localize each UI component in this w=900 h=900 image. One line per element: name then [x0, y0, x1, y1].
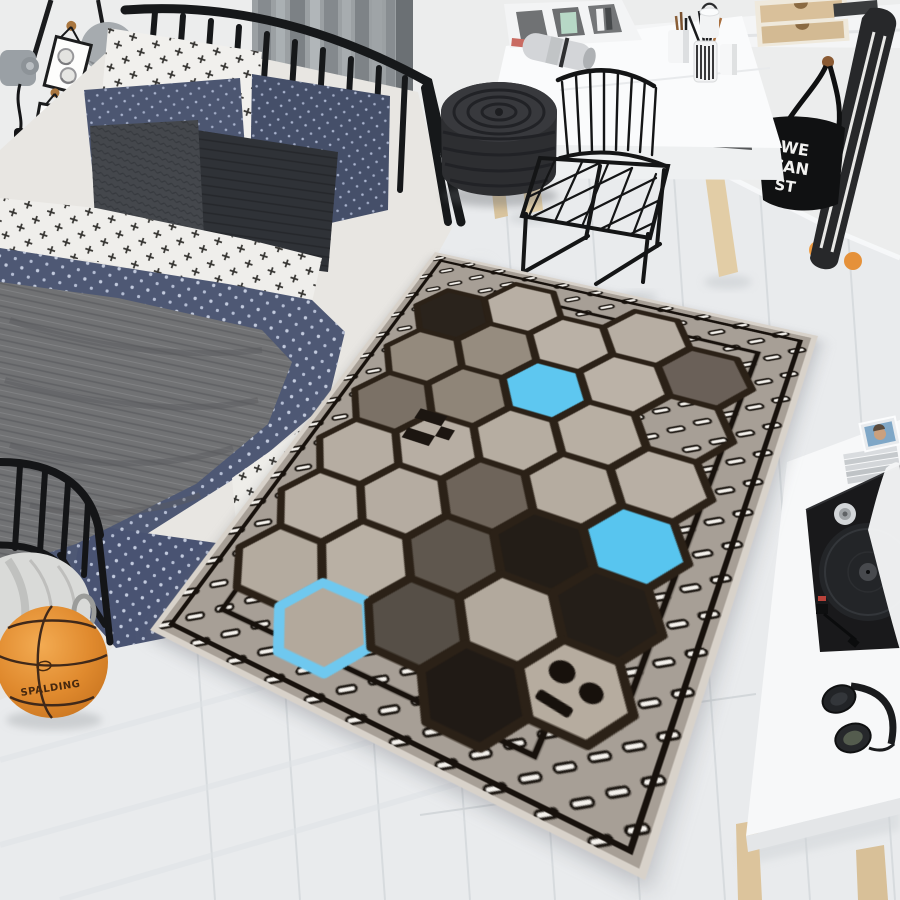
photo-card: [859, 417, 900, 452]
turntable-button: [818, 596, 826, 601]
bedroom-scene: WE CAN ST: [0, 0, 900, 900]
paper-roll: [700, 4, 719, 38]
book-mint: [560, 12, 577, 34]
table-leg-right: [856, 845, 888, 900]
knit-pouf: [441, 82, 558, 207]
candle: [720, 44, 737, 75]
